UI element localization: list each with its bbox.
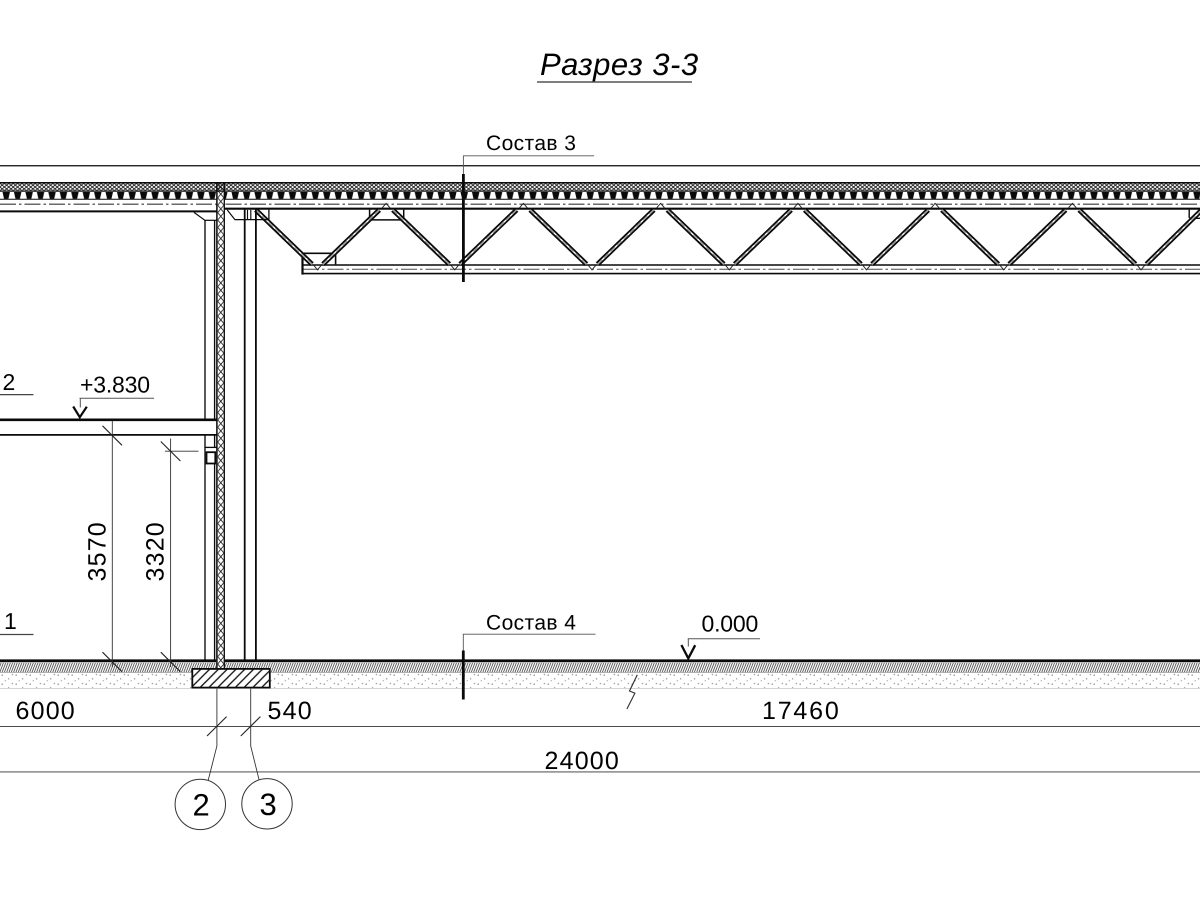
- svg-text:0.000: 0.000: [701, 611, 758, 637]
- svg-text:3: 3: [259, 787, 276, 822]
- svg-text:24000: 24000: [544, 747, 620, 775]
- svg-text:Состав 4: Состав 4: [486, 612, 576, 635]
- svg-text:+3.830: +3.830: [80, 372, 150, 398]
- svg-text:3320: 3320: [142, 521, 170, 581]
- svg-text:Разрез 3-3: Разрез 3-3: [540, 47, 699, 82]
- svg-text:6000: 6000: [15, 697, 75, 725]
- svg-text:17460: 17460: [762, 697, 841, 725]
- svg-text:3570: 3570: [84, 521, 112, 581]
- svg-text:540: 540: [267, 697, 312, 725]
- svg-text:1: 1: [4, 608, 17, 634]
- svg-text:2: 2: [192, 788, 209, 823]
- svg-text:2: 2: [2, 369, 15, 395]
- svg-text:Состав 3: Состав 3: [486, 132, 576, 155]
